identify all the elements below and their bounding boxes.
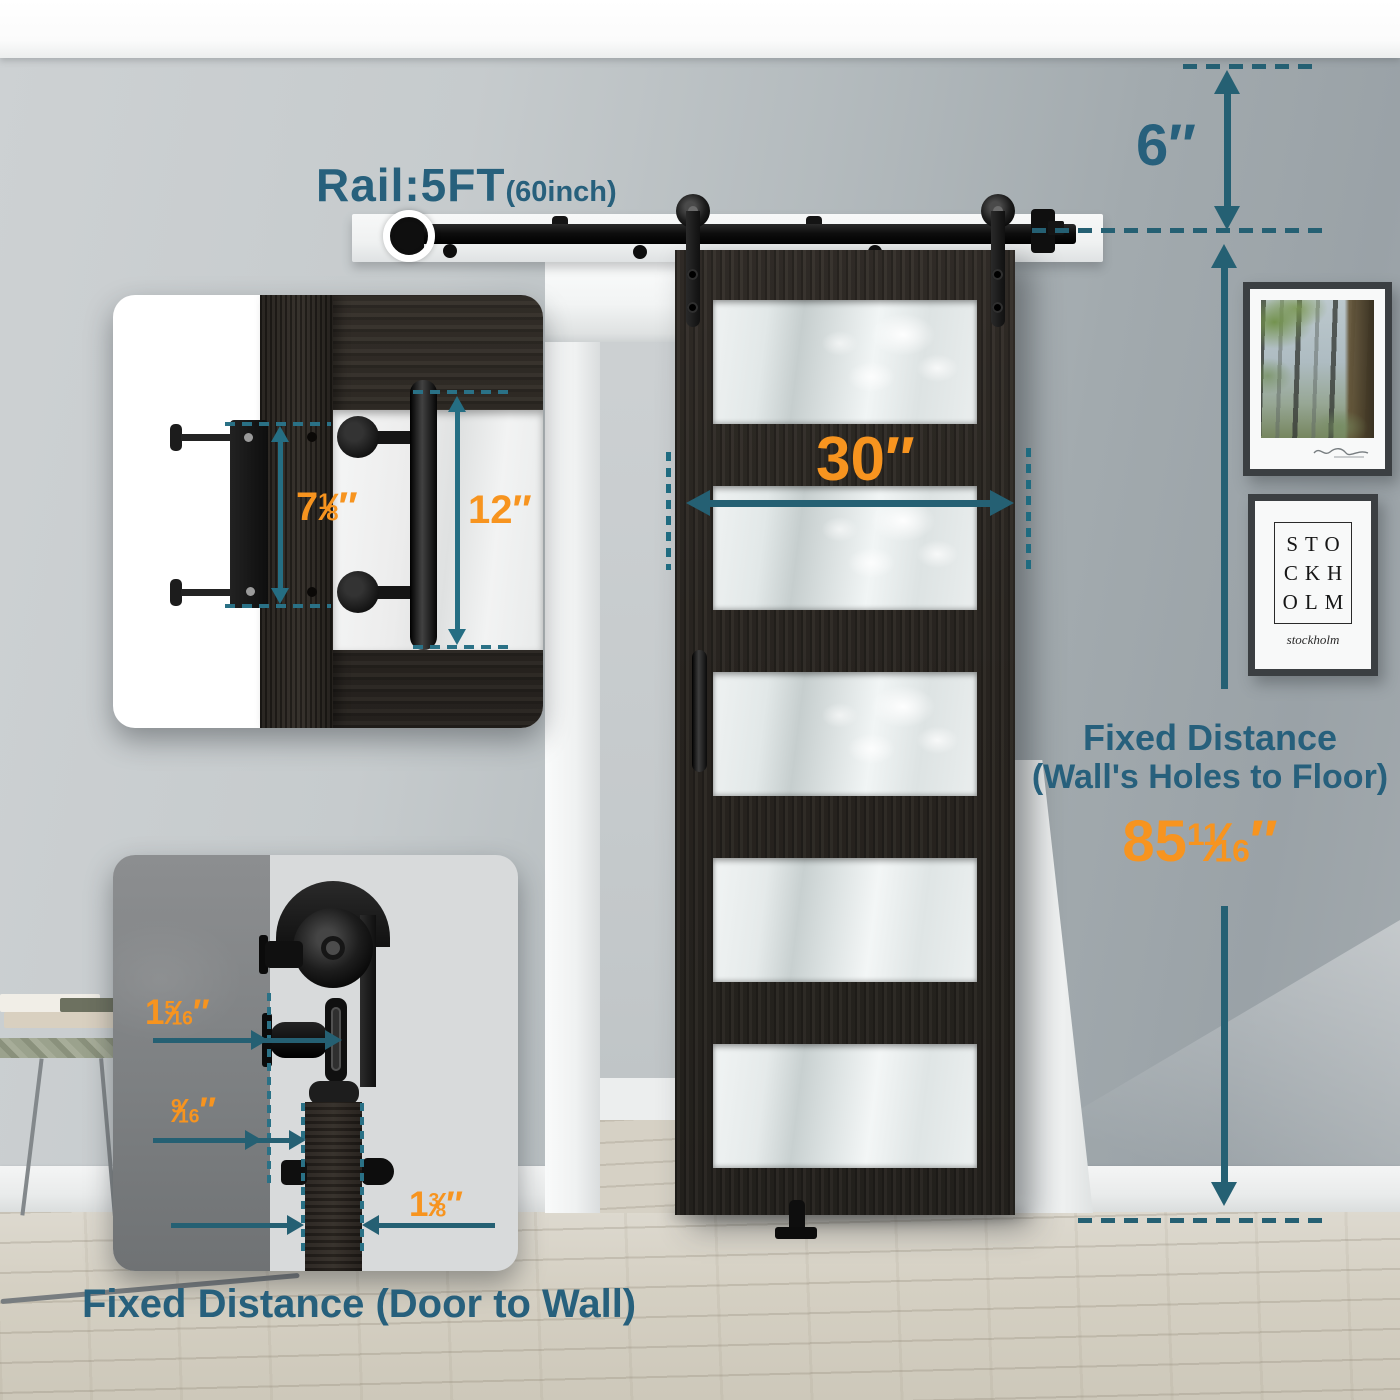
strap-bolt: [992, 269, 1003, 280]
fixed-distance-door-wall-caption: Fixed Distance (Door to Wall): [82, 1282, 636, 1327]
fixed-distance-value: 8511⁄16″: [1010, 808, 1390, 875]
value-whole: 85: [1122, 809, 1187, 874]
door-acorn-nut: [362, 1158, 394, 1185]
strap-bolt: [992, 302, 1003, 313]
value-denominator: 16: [178, 1106, 199, 1127]
screw-shaft: [181, 434, 230, 441]
dashed-handle-top: [413, 390, 509, 394]
book: [4, 1012, 116, 1028]
door-cross-section: [305, 1102, 362, 1271]
fixed-distance-line2: (Wall's Holes to Floor): [1010, 758, 1400, 796]
arrowhead-down: [1211, 1182, 1237, 1206]
inset2-wall-section: [113, 855, 270, 1271]
doorway-interior-floor: [600, 1120, 677, 1213]
arrow-shaft-6in: [1224, 90, 1231, 210]
value-unit: ″: [338, 485, 357, 529]
dashed-wall-face: [267, 993, 271, 1189]
value-unit: ″: [193, 993, 210, 1032]
dashed-line-door-right: [1026, 448, 1031, 575]
dashed-line-floor: [1078, 1218, 1322, 1223]
plate-height-label: 71⁄8″: [296, 485, 358, 530]
value-denominator: 8: [435, 1200, 446, 1221]
forest-photo-frame: [1243, 282, 1392, 476]
door-thickness-label: 13⁄8″: [409, 1185, 463, 1225]
doorway-top-trim: [545, 258, 677, 342]
arrowhead-right: [245, 1130, 262, 1150]
roller-hub-section: [321, 936, 345, 960]
screw-shaft: [181, 589, 230, 596]
handle-length-label: 12″: [468, 488, 532, 533]
arrow-shaft: [153, 1138, 289, 1143]
handle-detail-inset: 71⁄8″ 12″: [113, 295, 543, 728]
arrow-shaft-plate: [278, 440, 283, 590]
arrowhead-right: [325, 1030, 342, 1050]
dashed-plate-bottom: [225, 604, 331, 608]
rail-door-gap-label: 9⁄16″: [171, 1091, 216, 1131]
arrowhead-right: [990, 490, 1014, 516]
arrowhead-up: [271, 426, 289, 442]
dashed-line-ceiling: [1183, 64, 1318, 69]
arrow-shaft-30in: [706, 500, 994, 507]
poster-line: STO: [1279, 530, 1346, 559]
value-unit: ″: [446, 1185, 463, 1224]
clearance-detail-inset: 15⁄16″ 9⁄16″ 13⁄8″: [113, 855, 518, 1271]
door-glass-panel-1: [713, 300, 977, 424]
fixed-distance-line-lower: [1221, 906, 1228, 1184]
value-whole: 1: [145, 993, 164, 1032]
arrowhead-down: [271, 588, 289, 604]
wall-rail-gap-label: 15⁄16″: [145, 993, 210, 1033]
arrow-shaft-handle: [455, 410, 460, 632]
photo-signature: [1312, 444, 1374, 460]
poster-script-text: stockholm: [1287, 632, 1340, 648]
handle-flange-disc: [337, 571, 379, 613]
arrow-shaft: [171, 1223, 289, 1228]
doorway-interior: [600, 300, 677, 1213]
arrowhead-right: [251, 1030, 268, 1050]
door-screw-hole: [307, 432, 317, 442]
door-screw-hole: [307, 587, 317, 597]
handle-bar: [410, 380, 437, 650]
side-table-top: [0, 1038, 128, 1058]
handle-mount-plate: [230, 420, 268, 608]
door-glass-panel-5: [713, 1044, 977, 1168]
product-infographic-scene: STO CKH OLM stockholm Rail:5FT(60inch): [0, 0, 1400, 1400]
value-denominator: 8: [326, 500, 338, 525]
ceiling-strip: [0, 0, 1400, 58]
rail-bolt: [633, 245, 647, 259]
floor-guide-plate: [775, 1227, 817, 1239]
fixed-distance-wall-label: Fixed Distance (Wall's Holes to Floor): [1010, 718, 1400, 796]
fixed-distance-line-upper: [1221, 264, 1228, 689]
plate-hole: [244, 433, 253, 442]
door-width-label: 30″: [816, 424, 915, 495]
handle-flange-disc: [337, 416, 379, 458]
value-whole: 1: [409, 1185, 428, 1224]
stockholm-poster-box: STO CKH OLM: [1274, 522, 1352, 624]
door-glass-panel-3: [713, 672, 977, 796]
stockholm-poster-frame: STO CKH OLM stockholm: [1248, 494, 1378, 676]
door-handle: [692, 650, 707, 772]
arrowhead-right: [287, 1215, 304, 1235]
value-unit: ″: [199, 1091, 216, 1130]
plate-hole: [246, 587, 255, 596]
value-denominator: 16: [171, 1008, 192, 1029]
forest-photo: [1261, 300, 1374, 438]
book: [60, 998, 118, 1012]
end-stop-highlight-circle: [383, 210, 435, 262]
value-denominator: 16: [1214, 833, 1249, 869]
value-whole: 7: [296, 485, 318, 529]
doorway-interior-baseboard: [600, 1078, 677, 1120]
arrowhead-left: [362, 1215, 379, 1235]
barn-door: [675, 250, 1015, 1215]
arrowhead-up: [448, 396, 466, 412]
dashed-line-rail-level: [1032, 228, 1322, 233]
sliding-rail: [388, 224, 1076, 244]
poster-line: OLM: [1276, 588, 1351, 617]
strap-bolt: [687, 269, 698, 280]
arrowhead-down: [448, 629, 466, 645]
arrowhead-down: [1214, 206, 1240, 230]
rail-length-label: Rail:5FT(60inch): [316, 158, 617, 212]
rail-length-main: Rail:5FT: [316, 159, 505, 211]
rail-length-sub: (60inch): [505, 176, 616, 208]
yoke-bolt: [265, 941, 303, 968]
dashed-handle-bottom: [413, 645, 509, 649]
value-unit: ″: [1250, 809, 1278, 874]
dashed-line-door-left: [666, 452, 671, 570]
doorway-left-trim: [545, 258, 602, 1213]
arrowhead-right: [289, 1130, 306, 1150]
poster-line: CKH: [1277, 559, 1349, 588]
gap-6in-label: 6″: [1136, 112, 1196, 179]
fixed-distance-line1: Fixed Distance: [1010, 718, 1400, 758]
door-glass-panel-4: [713, 858, 977, 982]
rail-bolt: [443, 244, 457, 258]
arrow-shaft: [153, 1038, 325, 1043]
strap-bolt: [687, 302, 698, 313]
